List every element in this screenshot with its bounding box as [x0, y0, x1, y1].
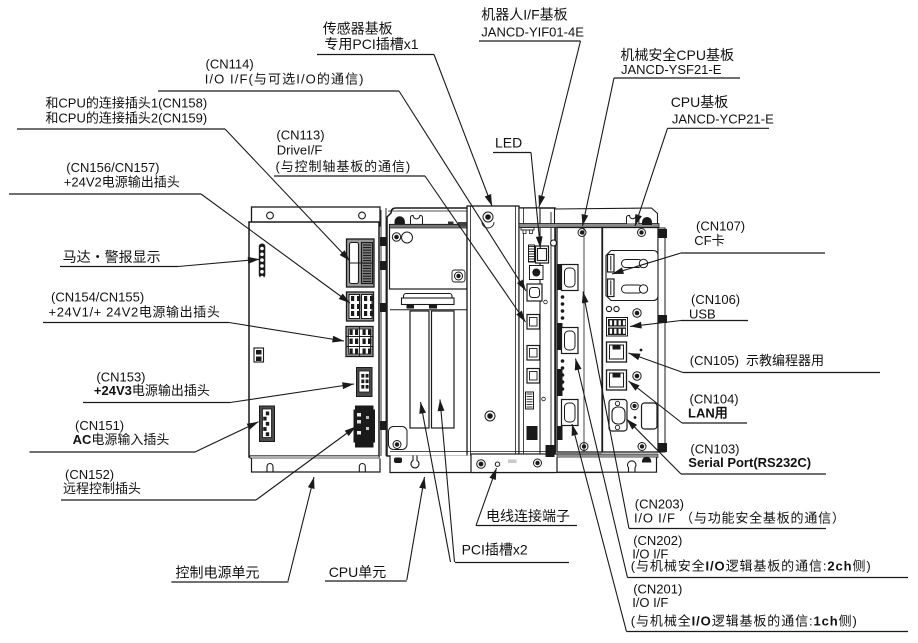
svg-text:专用PCI插槽x1: 专用PCI插槽x1	[324, 36, 418, 52]
svg-text:(CN107): (CN107)	[696, 219, 745, 234]
svg-text:JANCD-YSF21-E: JANCD-YSF21-E	[621, 62, 722, 77]
svg-text:JANCD-YCP21-E: JANCD-YCP21-E	[672, 112, 774, 127]
svg-text:CPU单元: CPU单元	[329, 564, 387, 580]
svg-text:(CN151): (CN151)	[75, 418, 124, 433]
svg-text:(与机械全I/O逻辑基板的通信:1ch侧): (与机械全I/O逻辑基板的通信:1ch侧)	[631, 614, 858, 629]
svg-text:DriveI/F: DriveI/F	[277, 143, 323, 158]
svg-text:I/O I/F: I/O I/F	[632, 595, 668, 610]
svg-text:CPU基板: CPU基板	[671, 94, 729, 110]
svg-text:(CN104): (CN104)	[690, 392, 739, 407]
svg-text:(与机械安全I/O逻辑基板的通信:2ch侧): (与机械安全I/O逻辑基板的通信:2ch侧)	[631, 559, 872, 574]
svg-text:(CN154/CN155): (CN154/CN155)	[51, 290, 144, 305]
svg-text:和CPU的连接插头1(CN158): 和CPU的连接插头1(CN158)	[45, 96, 207, 111]
svg-text:(CN105)示教编程器用: (CN105)示教编程器用	[690, 353, 824, 368]
svg-text:(CN114): (CN114)	[206, 57, 254, 72]
svg-text:(CN156/CN157): (CN156/CN157)	[66, 160, 159, 175]
svg-text:LED: LED	[495, 135, 522, 151]
svg-text:机器人I/F基板: 机器人I/F基板	[481, 7, 567, 23]
svg-text:电线连接端子: 电线连接端子	[486, 508, 570, 524]
svg-text:JANCD-YIF01-4E: JANCD-YIF01-4E	[481, 25, 584, 40]
svg-text:AC电源输入插头: AC电源输入插头	[73, 432, 170, 447]
svg-text:(CN203): (CN203)	[635, 497, 684, 512]
svg-text:+24V1/+ 24V2电源输出插头: +24V1/+ 24V2电源输出插头	[49, 304, 221, 319]
svg-text:PCI插槽x2: PCI插槽x2	[462, 542, 528, 558]
svg-text:(CN113): (CN113)	[276, 128, 324, 143]
svg-text:(CN106): (CN106)	[691, 292, 740, 307]
svg-text:I/O I/F(与可选I/O的通信): I/O I/F(与可选I/O的通信)	[205, 72, 365, 87]
svg-text:CF卡: CF卡	[694, 233, 724, 248]
svg-text:传感器基板: 传感器基板	[323, 21, 393, 37]
svg-text:马达・警报显示: 马达・警报显示	[63, 249, 161, 265]
svg-text:USB: USB	[689, 306, 716, 321]
svg-text:(与控制轴基板的通信): (与控制轴基板的通信)	[276, 159, 412, 174]
svg-text:Serial Port(RS232C): Serial Port(RS232C)	[688, 455, 811, 470]
svg-text:和CPU的连接插头2(CN159): 和CPU的连接插头2(CN159)	[45, 111, 207, 126]
svg-text:LAN用: LAN用	[688, 406, 728, 421]
svg-text:机械安全CPU基板: 机械安全CPU基板	[620, 47, 734, 63]
svg-text:(CN152): (CN152)	[65, 467, 114, 482]
svg-text:远程控制插头: 远程控制插头	[63, 481, 141, 496]
svg-text:+24V2电源输出插头: +24V2电源输出插头	[64, 174, 180, 189]
svg-text:控制电源单元: 控制电源单元	[176, 565, 260, 581]
svg-text:+24V3电源输出插头: +24V3电源输出插头	[94, 383, 210, 398]
svg-text:I/O I/F （与功能安全基板的通信）: I/O I/F （与功能安全基板的通信）	[634, 511, 846, 526]
